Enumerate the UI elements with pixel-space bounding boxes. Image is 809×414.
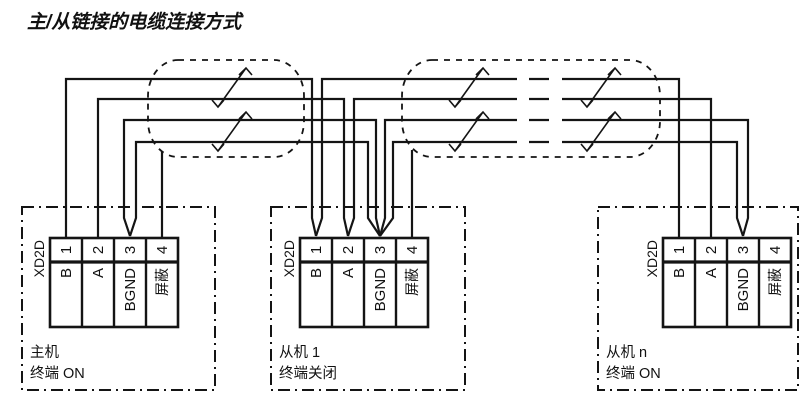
- pin-name: B: [671, 268, 688, 278]
- device-labels-slaven: 从机 n 终端 ON: [606, 344, 661, 382]
- pin-name: A: [703, 268, 720, 278]
- twisted-pair-icon: [449, 112, 489, 151]
- device-name-label: 从机 n: [606, 344, 647, 361]
- wire-bgnd2-into-slaven: [562, 142, 743, 236]
- pin-name: BGND: [735, 268, 752, 312]
- pin-name: BGND: [372, 268, 389, 312]
- termination-label: 终端关闭: [279, 365, 337, 382]
- twisted-pair-icon: [212, 112, 252, 151]
- pin-name: A: [340, 268, 357, 278]
- termination-label: 终端 ON: [30, 365, 85, 382]
- twisted-pair-icon: [581, 68, 621, 107]
- device-labels-master: 主机 终端 ON: [30, 344, 85, 382]
- pin-name: B: [308, 268, 325, 278]
- wire-b-into-slaven: [562, 79, 679, 238]
- pin-name: 屏蔽: [767, 268, 783, 296]
- wire-b-master-to-slave1: [66, 79, 316, 238]
- twisted-pair-icon: [212, 68, 252, 107]
- device-labels-slave1: 从机 1 终端关闭: [279, 344, 337, 382]
- device-name-label: 从机 1: [279, 344, 320, 361]
- connector-label: XD2D: [281, 240, 297, 277]
- termination-label: 终端 ON: [606, 365, 661, 382]
- pin-number: 3: [735, 246, 752, 254]
- device-name-label: 主机: [30, 344, 59, 361]
- wire-bgnd1-into-slaven: [562, 120, 748, 236]
- wiring-diagram-page: 主/从链接的电缆连接方式 XD2D 1 2 3: [0, 0, 809, 414]
- master-slave-link-diagram: 主/从链接的电缆连接方式 XD2D 1 2 3: [0, 0, 809, 414]
- connector-block-slave1: XD2D 1 2 3 4 B A BGND 屏蔽: [281, 238, 428, 327]
- pin-number: 3: [122, 246, 139, 254]
- pin-name: B: [58, 268, 75, 278]
- connector-label: XD2D: [644, 240, 660, 277]
- diagram-title: 主/从链接的电缆连接方式: [27, 11, 244, 33]
- pin-number: 4: [404, 246, 421, 254]
- pin-number: 2: [703, 246, 720, 254]
- pin-name: A: [90, 268, 107, 278]
- twisted-pair-icon: [581, 112, 621, 151]
- wire-bgnd1-slave1-out: [380, 120, 517, 236]
- pin-number: 1: [308, 246, 325, 254]
- pin-number: 3: [372, 246, 389, 254]
- pin-name: BGND: [122, 268, 139, 312]
- pin-number: 4: [154, 246, 171, 254]
- pin-number: 1: [58, 246, 75, 254]
- pin-number: 4: [767, 246, 784, 254]
- pin-name: 屏蔽: [404, 268, 420, 296]
- pin-number: 2: [340, 246, 357, 254]
- pin-name: 屏蔽: [154, 268, 170, 296]
- connector-label: XD2D: [31, 240, 47, 277]
- connector-block-slaven: XD2D 1 2 3 4 B A BGND 屏蔽: [644, 238, 791, 327]
- connector-block-master: XD2D 1 2 3 4 B A BGND 屏蔽: [31, 238, 178, 327]
- pin-number: 1: [671, 246, 688, 254]
- pin-number: 2: [90, 246, 107, 254]
- twisted-pair-icon: [449, 68, 489, 107]
